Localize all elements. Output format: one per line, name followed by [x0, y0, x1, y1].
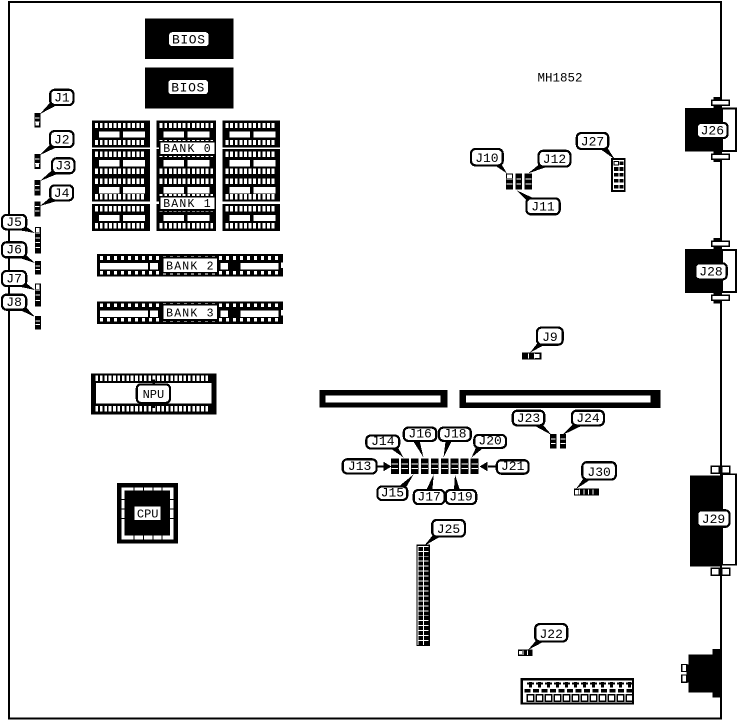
- svg-text:J12: J12: [543, 152, 566, 167]
- svg-text:J22: J22: [539, 627, 562, 642]
- svg-text:J27: J27: [581, 134, 604, 149]
- svg-text:J26: J26: [701, 124, 724, 139]
- svg-text:BIOS: BIOS: [172, 32, 206, 47]
- svg-text:J7: J7: [6, 271, 22, 286]
- svg-text:J19: J19: [449, 489, 472, 504]
- svg-text:J5: J5: [6, 215, 22, 230]
- svg-text:J11: J11: [531, 200, 555, 215]
- svg-text:CPU: CPU: [137, 507, 159, 521]
- svg-text:MH1852: MH1852: [537, 72, 582, 86]
- svg-text:J20: J20: [478, 433, 501, 448]
- svg-text:J10: J10: [475, 151, 498, 166]
- svg-text:J17: J17: [417, 490, 440, 505]
- svg-text:J8: J8: [6, 295, 22, 310]
- svg-text:BANK 3: BANK 3: [166, 308, 215, 321]
- svg-text:J16: J16: [408, 426, 431, 441]
- svg-text:J23: J23: [517, 411, 540, 426]
- svg-text:J28: J28: [699, 265, 722, 280]
- svg-text:J30: J30: [587, 465, 610, 480]
- svg-text:BANK 1: BANK 1: [163, 198, 212, 211]
- svg-text:J24: J24: [576, 411, 600, 426]
- svg-text:J15: J15: [381, 485, 404, 500]
- svg-text:J13: J13: [348, 459, 371, 474]
- svg-text:BANK 2: BANK 2: [166, 260, 215, 273]
- svg-text:BANK 0: BANK 0: [163, 143, 212, 156]
- svg-text:J21: J21: [501, 459, 525, 474]
- svg-text:NPU: NPU: [143, 388, 165, 402]
- svg-text:J4: J4: [54, 186, 70, 201]
- svg-text:J25: J25: [437, 522, 460, 537]
- svg-text:J6: J6: [6, 243, 22, 258]
- svg-text:J2: J2: [54, 132, 70, 147]
- svg-text:J9: J9: [542, 330, 558, 345]
- svg-text:J3: J3: [55, 159, 71, 174]
- svg-text:J29: J29: [702, 512, 725, 527]
- svg-text:BIOS: BIOS: [171, 80, 205, 95]
- svg-text:J14: J14: [371, 434, 395, 449]
- svg-text:J18: J18: [443, 426, 466, 441]
- svg-text:J1: J1: [54, 90, 70, 105]
